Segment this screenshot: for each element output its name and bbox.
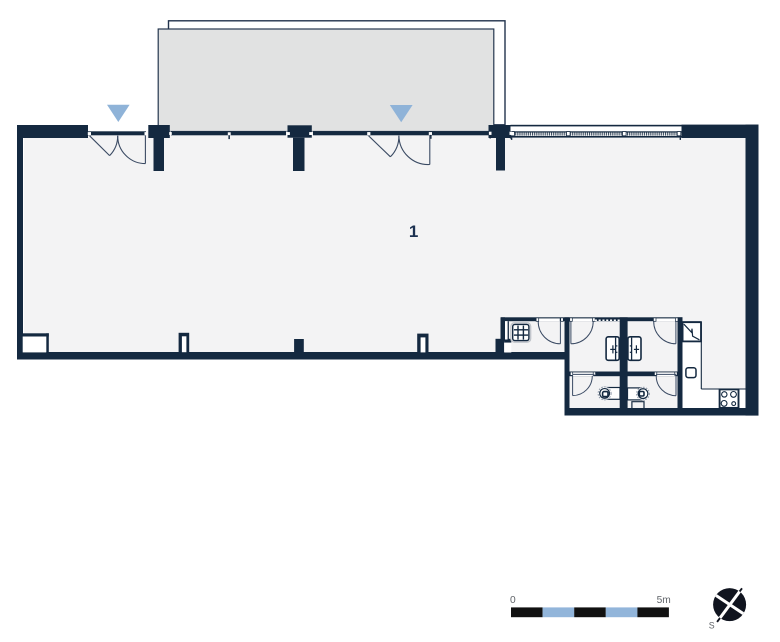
svg-text:S: S — [709, 621, 715, 631]
svg-text:5m: 5m — [657, 595, 671, 606]
svg-text:1: 1 — [409, 222, 418, 241]
svg-text:0: 0 — [510, 595, 516, 606]
